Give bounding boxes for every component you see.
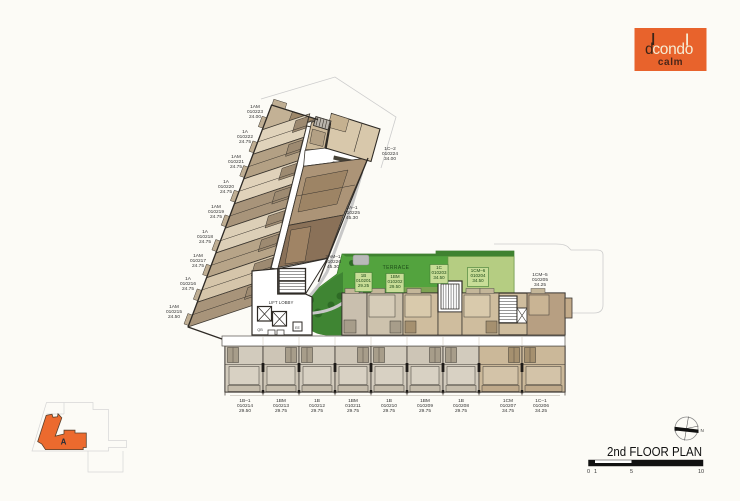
svg-text:10: 10 [698, 469, 704, 475]
svg-text:1: 1 [594, 469, 597, 475]
svg-text:2nd FLOOR PLAN: 2nd FLOOR PLAN [607, 444, 702, 459]
svg-text:5: 5 [630, 469, 633, 475]
svg-text:EE: EE [295, 326, 300, 330]
svg-text:0: 0 [587, 469, 590, 475]
svg-text:LIFT LOBBY: LIFT LOBBY [269, 300, 294, 305]
svg-text:TERRACE: TERRACE [383, 265, 410, 271]
svg-text:1CM–501020534.25: 1CM–501020534.25 [532, 272, 548, 288]
svg-text:dcondo: dcondo [645, 41, 693, 58]
svg-text:calm: calm [658, 57, 683, 68]
svg-text:2AM–101022645.30: 2AM–101022645.30 [325, 254, 341, 270]
svg-text:A: A [61, 438, 67, 447]
svg-text:QB: QB [257, 328, 263, 332]
svg-text:N: N [701, 428, 704, 433]
